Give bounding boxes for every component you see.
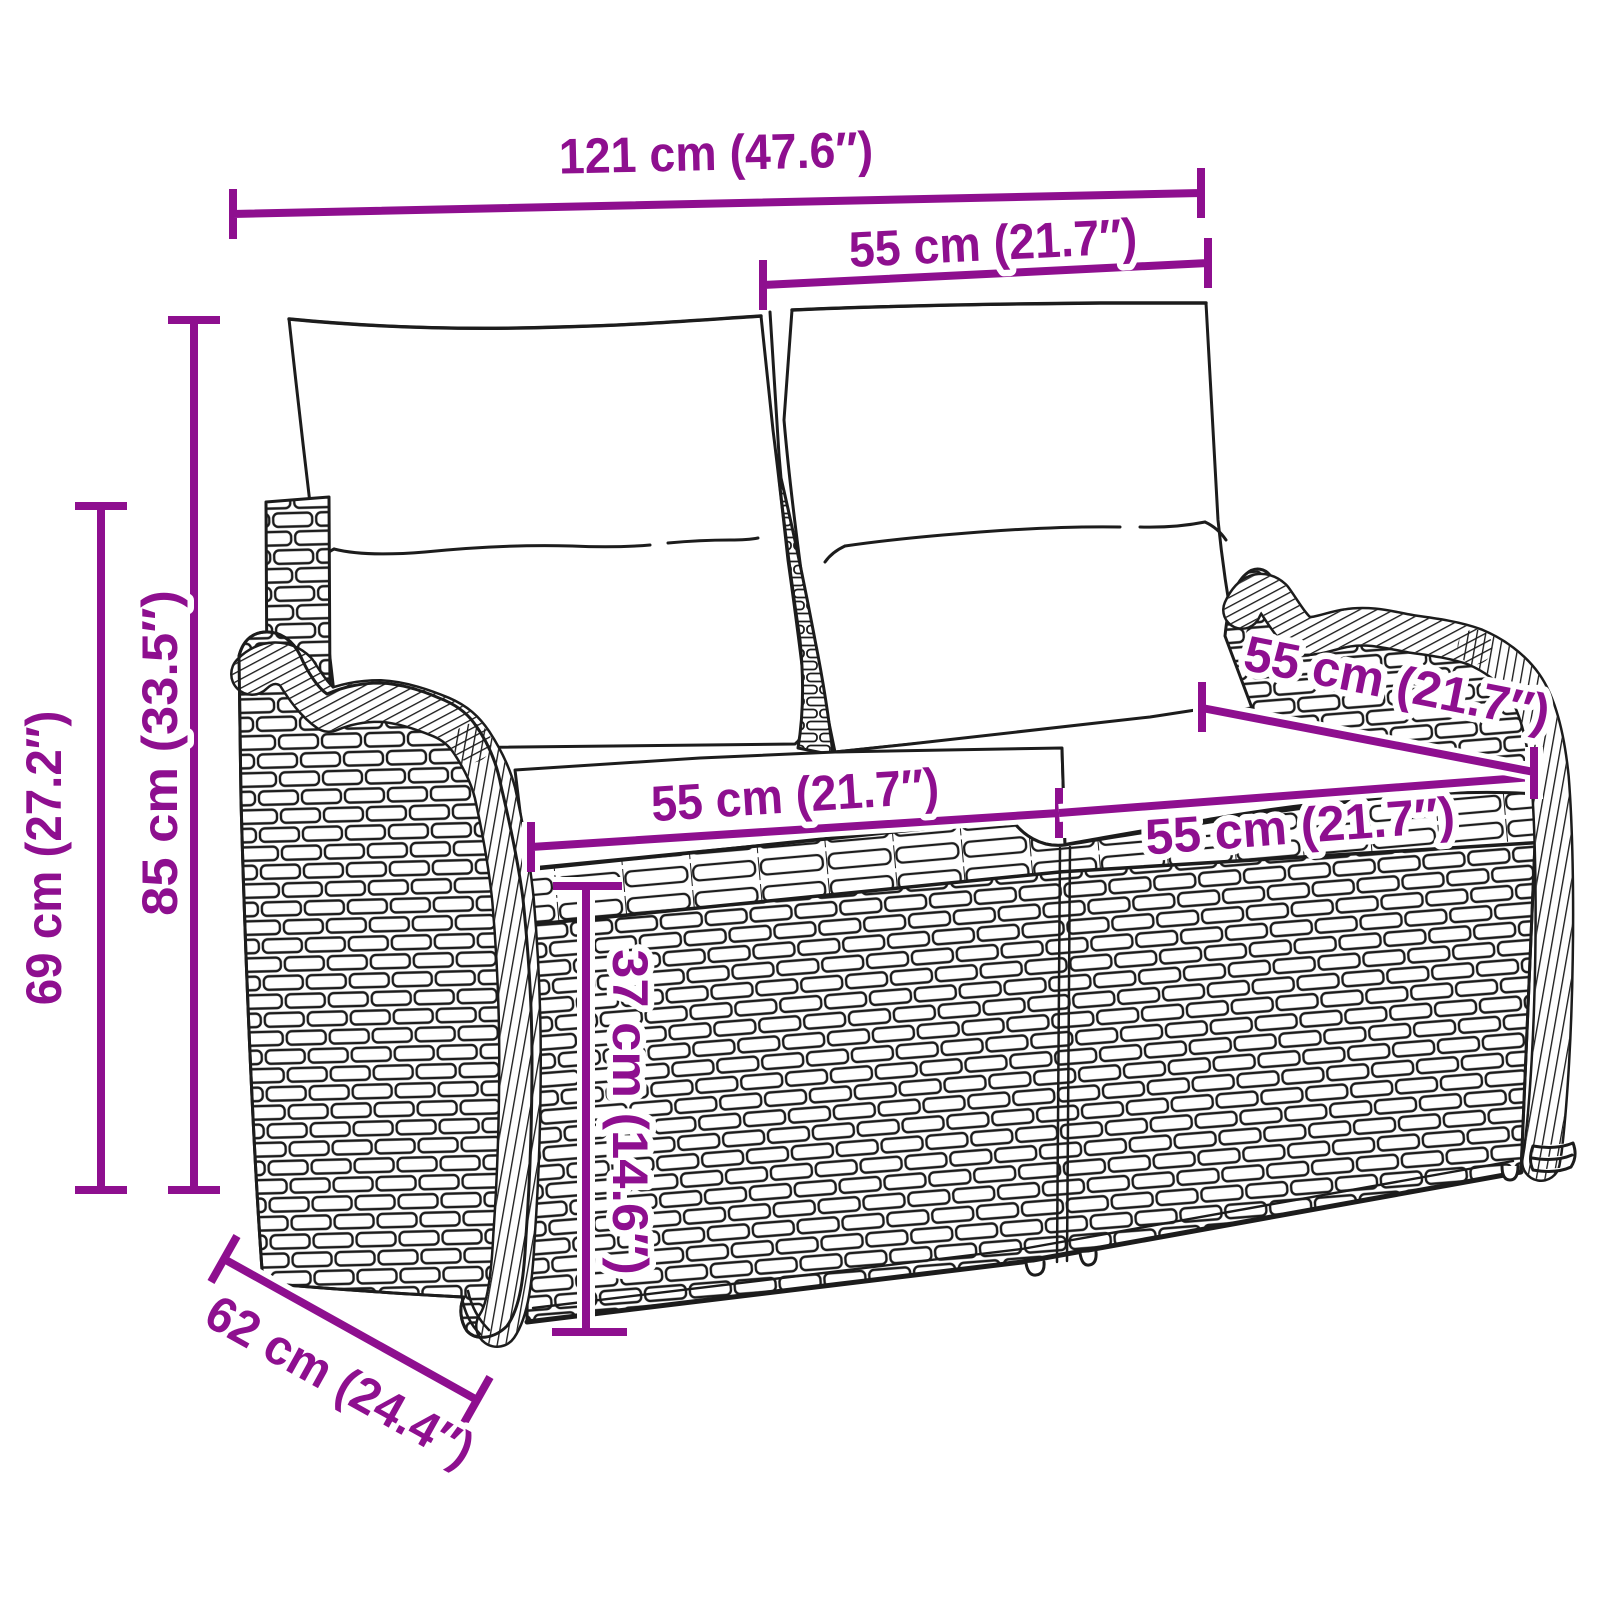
svg-text:121 cm (47.6″): 121 cm (47.6″) bbox=[558, 122, 873, 185]
svg-text:37 cm (14.6″): 37 cm (14.6″) bbox=[602, 949, 658, 1275]
svg-text:69 cm (27.2″): 69 cm (27.2″) bbox=[17, 711, 72, 1006]
svg-text:85 cm (33.5″): 85 cm (33.5″) bbox=[132, 590, 188, 916]
